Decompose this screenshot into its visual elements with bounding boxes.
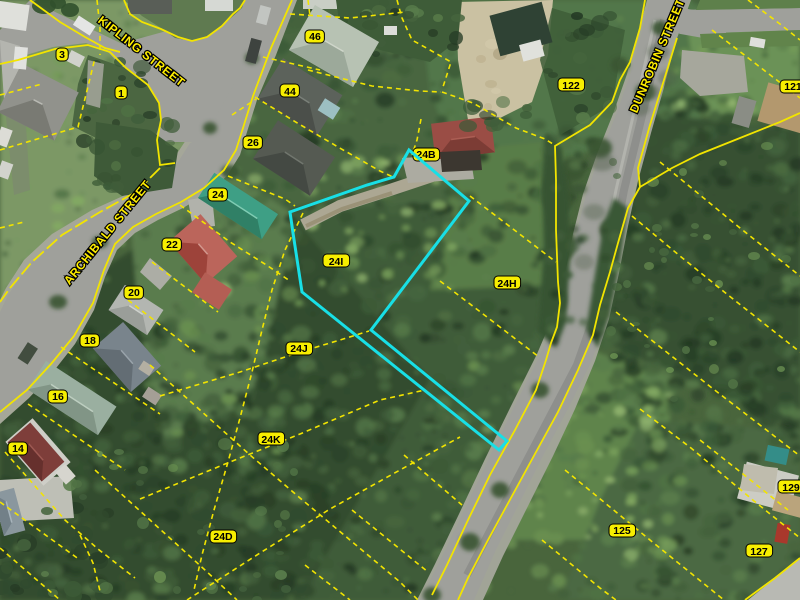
svg-text:24I: 24I (329, 256, 344, 268)
svg-text:24: 24 (212, 189, 224, 201)
svg-text:46: 46 (309, 31, 321, 43)
svg-text:24H: 24H (497, 278, 516, 290)
svg-text:3: 3 (59, 49, 65, 61)
svg-text:44: 44 (284, 86, 296, 98)
svg-text:125: 125 (613, 525, 631, 537)
svg-text:127: 127 (750, 546, 768, 558)
svg-text:24K: 24K (261, 434, 281, 446)
svg-text:26: 26 (247, 137, 259, 149)
svg-text:1: 1 (118, 88, 124, 100)
svg-text:24D: 24D (213, 531, 233, 543)
svg-text:22: 22 (166, 239, 178, 251)
svg-text:16: 16 (52, 391, 64, 403)
svg-text:129: 129 (782, 482, 800, 494)
svg-text:14: 14 (12, 443, 24, 455)
svg-text:122: 122 (562, 80, 580, 92)
svg-text:121: 121 (784, 81, 800, 93)
svg-text:18: 18 (84, 335, 96, 347)
svg-text:20: 20 (128, 287, 140, 299)
svg-text:24J: 24J (290, 343, 308, 355)
